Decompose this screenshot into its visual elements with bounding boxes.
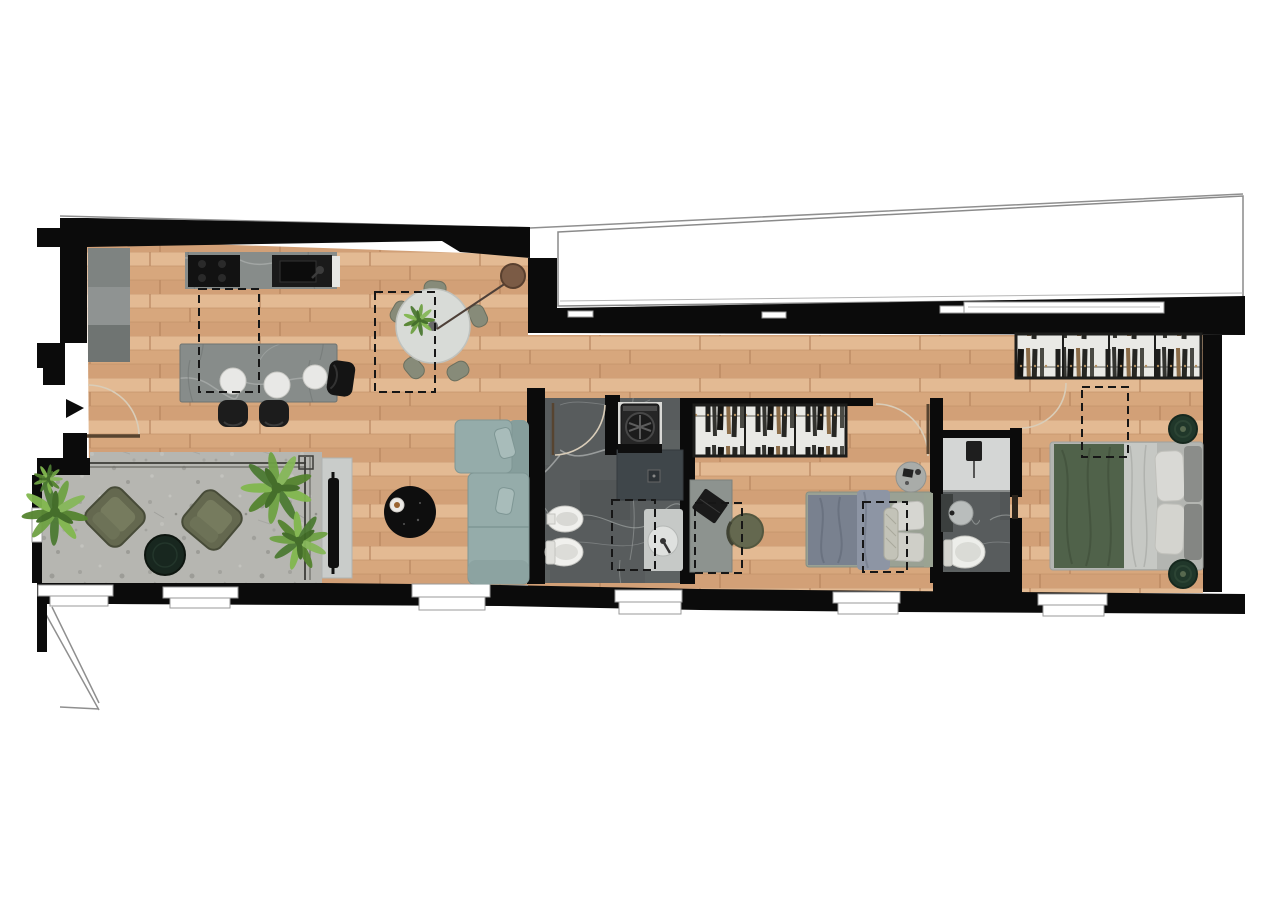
wall-below-entry bbox=[63, 433, 87, 458]
washer-shelf bbox=[618, 444, 662, 453]
master-headboard-1 bbox=[1184, 446, 1202, 502]
master-headboard-2 bbox=[1184, 504, 1202, 560]
sofa-armrest bbox=[468, 560, 529, 584]
coffee-table bbox=[384, 486, 436, 538]
bed2-pillow-pattern bbox=[884, 508, 898, 560]
kitchen-cabinet-1 bbox=[88, 248, 130, 287]
pouf-bottom bbox=[1169, 560, 1197, 588]
wall-bottom-left-stub bbox=[37, 600, 47, 652]
window-top-slit-1 bbox=[568, 311, 593, 317]
window-bath1 bbox=[615, 590, 682, 614]
kitchen-cabinet-2 bbox=[88, 287, 130, 325]
island-plate-3 bbox=[303, 365, 327, 389]
window-terrace-2 bbox=[163, 587, 238, 608]
window-top-slit-3 bbox=[940, 306, 964, 313]
floor-plan-canvas bbox=[0, 0, 1280, 905]
tv-icon bbox=[328, 478, 339, 568]
master-bed bbox=[1050, 442, 1203, 570]
wall-laundry-left-jamb bbox=[605, 395, 620, 455]
island-plate-2 bbox=[264, 372, 290, 398]
island-stool-1 bbox=[218, 400, 248, 427]
master-pillow-2 bbox=[1155, 503, 1186, 554]
window-master bbox=[1038, 594, 1107, 616]
master-pillow-1 bbox=[1155, 450, 1186, 501]
island-stool-2 bbox=[259, 400, 289, 427]
desk-chair bbox=[729, 514, 763, 548]
wall-step-column bbox=[528, 258, 557, 333]
bath2-door-leaf bbox=[1012, 495, 1018, 519]
wall-bath2-bottom bbox=[933, 572, 1022, 593]
window-top-slit-2 bbox=[762, 312, 786, 318]
island-plate-1 bbox=[220, 368, 246, 394]
croissant-icon bbox=[394, 502, 400, 508]
terrace-side-table bbox=[145, 535, 185, 575]
bidet-icon bbox=[547, 506, 583, 532]
floor-plan-page bbox=[0, 0, 1280, 905]
wall-living-bath1 bbox=[527, 388, 545, 584]
wall-right bbox=[1203, 335, 1222, 592]
shower-head-icon bbox=[966, 441, 982, 461]
island-bar-chair bbox=[326, 359, 357, 397]
wall-terrace-left-b bbox=[32, 542, 42, 583]
window-living-sliding-door bbox=[412, 584, 490, 610]
pouf-top bbox=[1169, 415, 1197, 443]
bed2-headboard bbox=[924, 493, 933, 567]
kitchen-cabinet-3 bbox=[88, 325, 130, 362]
wall-bath2-top bbox=[943, 430, 1015, 438]
kitchen-sink-basin bbox=[280, 261, 316, 282]
wardrobe-bedroom2 bbox=[694, 405, 846, 456]
master-sheet bbox=[1124, 443, 1157, 569]
cooktop bbox=[188, 255, 240, 287]
wall-bath2-right-upper bbox=[1010, 428, 1022, 497]
toilet-icon bbox=[545, 538, 583, 566]
pendant-lamp-icon bbox=[501, 264, 525, 288]
window-bedroom2 bbox=[833, 592, 900, 614]
bath2-toilet-icon bbox=[944, 536, 985, 568]
bedside-table-2 bbox=[896, 462, 926, 492]
laundry-niche bbox=[618, 402, 662, 453]
kitchen-counter-end bbox=[332, 256, 340, 287]
wall-left-upper bbox=[60, 237, 87, 343]
